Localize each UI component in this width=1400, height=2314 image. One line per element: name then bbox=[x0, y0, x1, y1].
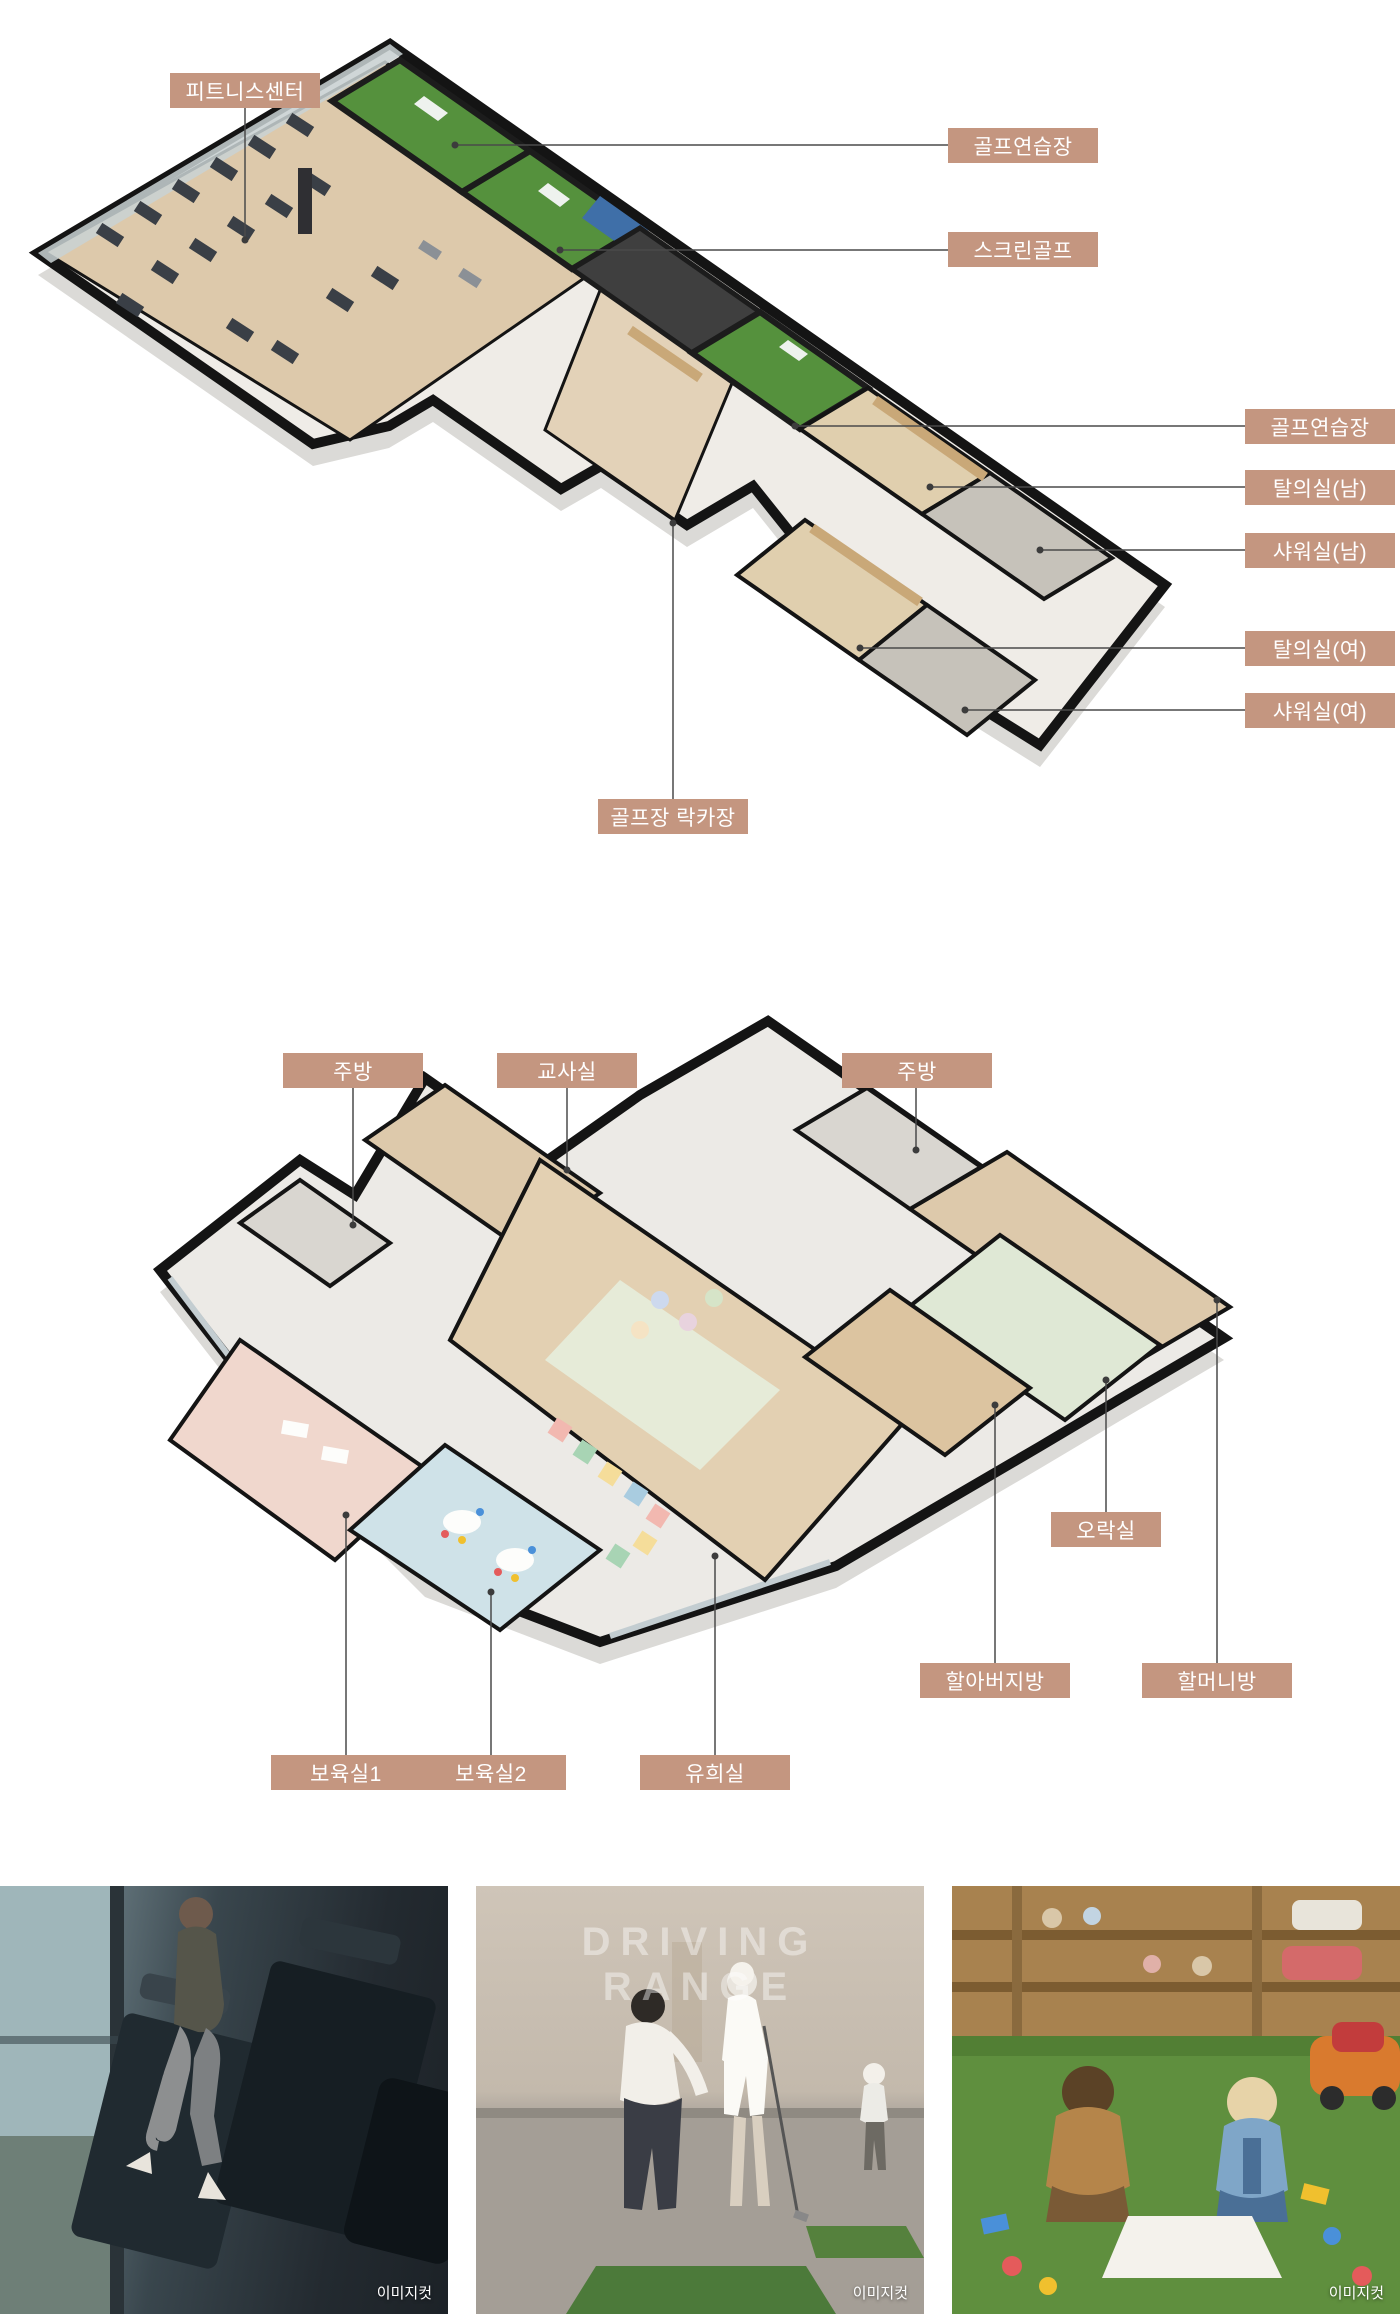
label-grandmother-room: 할머니방 bbox=[1142, 1663, 1292, 1698]
photo-kids-playroom: 이미지컷 bbox=[952, 1886, 1400, 2314]
label-kitchen-1: 주방 bbox=[283, 1053, 423, 1088]
photo-golf-range: DRIVING RANGE bbox=[476, 1886, 924, 2314]
watermark: 이미지컷 bbox=[377, 2282, 432, 2303]
driving-range-wall-text: DRIVING RANGE bbox=[476, 1920, 924, 2010]
label-locker-men: 탈의실(남) bbox=[1245, 470, 1395, 505]
label-kitchen-2: 주방 bbox=[842, 1053, 992, 1088]
white-board bbox=[1102, 2216, 1282, 2278]
treadmill-shapes bbox=[69, 1916, 448, 2271]
label-golf-locker: 골프장 락카장 bbox=[598, 799, 748, 834]
photo-kids-art bbox=[952, 1886, 1400, 2314]
label-golf-range-2: 골프연습장 bbox=[1245, 409, 1395, 444]
label-nursery-1: 보육실1 bbox=[271, 1755, 421, 1790]
watermark: 이미지컷 bbox=[853, 2282, 908, 2303]
label-grandfather-room: 할아버지방 bbox=[920, 1663, 1070, 1698]
floorplan-illustrations bbox=[0, 0, 1400, 1860]
label-shower-women: 샤워실(여) bbox=[1245, 693, 1395, 728]
watermark: 이미지컷 bbox=[1329, 2282, 1384, 2303]
photo-fitness-center: 이미지컷 bbox=[0, 1886, 448, 2314]
label-locker-women: 탈의실(여) bbox=[1245, 631, 1395, 666]
label-game-room: 오락실 bbox=[1051, 1512, 1161, 1547]
label-nursery-2: 보육실2 bbox=[416, 1755, 566, 1790]
label-shower-men: 샤워실(남) bbox=[1245, 533, 1395, 568]
floorplan-daycare-level bbox=[160, 1021, 1230, 1664]
label-fitness-center: 피트니스센터 bbox=[170, 73, 320, 108]
photo-gym-art bbox=[0, 1886, 448, 2314]
label-play-room: 유희실 bbox=[640, 1755, 790, 1790]
page: 피트니스센터 골프연습장 스크린골프 골프연습장 탈의실(남) 샤워실(남) 탈… bbox=[0, 0, 1400, 2314]
label-golf-range-1: 골프연습장 bbox=[948, 128, 1098, 163]
label-teachers-room: 교사실 bbox=[497, 1053, 637, 1088]
label-screen-golf: 스크린골프 bbox=[948, 232, 1098, 267]
toy-shelf bbox=[952, 1886, 1400, 2036]
